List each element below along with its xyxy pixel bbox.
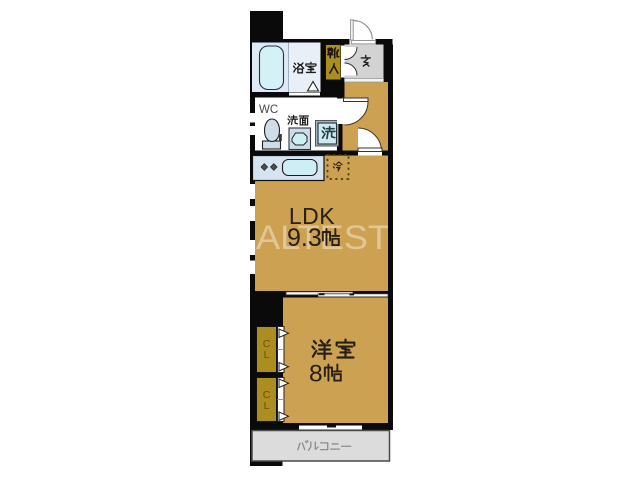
svg-text:L: L [264,349,270,361]
svg-text:8: 8 [309,361,323,388]
svg-text:9.3: 9.3 [287,224,322,252]
svg-text:L: L [264,400,270,412]
svg-text:WC: WC [259,104,278,116]
